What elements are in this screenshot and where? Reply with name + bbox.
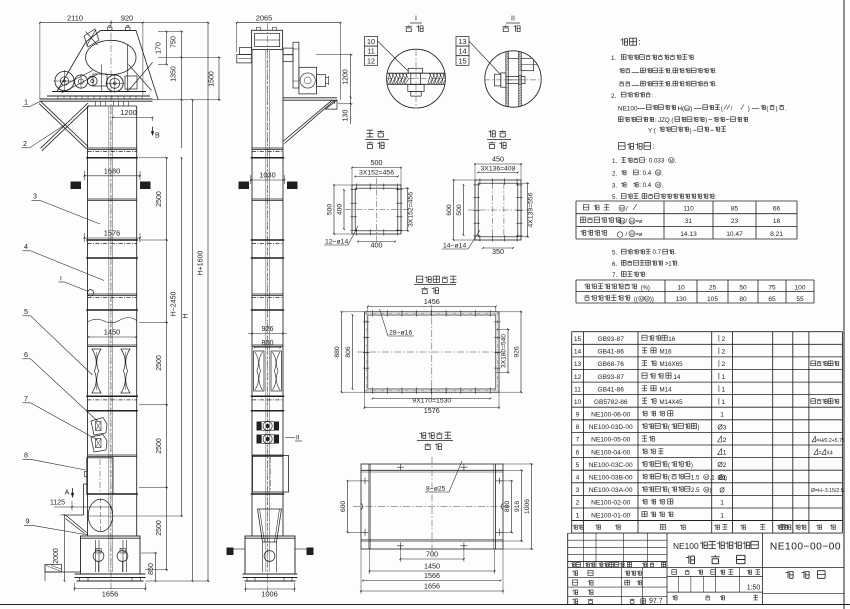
svg-text:,1: ,1	[710, 475, 716, 482]
svg-text:25: 25	[709, 284, 717, 291]
svg-text:3.: 3.	[612, 183, 617, 190]
svg-text:>1: >1	[665, 260, 673, 267]
svg-text:2: 2	[576, 500, 580, 507]
svg-text:100: 100	[794, 284, 805, 291]
svg-text:4X139=556: 4X139=556	[528, 192, 535, 227]
svg-text:Y (: Y (	[648, 127, 657, 134]
svg-text:2.: 2.	[612, 170, 617, 177]
svg-text:500: 500	[371, 158, 383, 167]
svg-text:23: 23	[731, 218, 739, 225]
svg-text:): )	[748, 106, 750, 113]
svg-text:12−ø14: 12−ø14	[325, 239, 348, 246]
svg-text:75: 75	[768, 284, 776, 291]
svg-text:NE100-03D-00: NE100-03D-00	[589, 424, 633, 431]
svg-text:GB41-86: GB41-86	[597, 349, 624, 356]
svg-text:NE100-03C-00: NE100-03C-00	[589, 462, 633, 469]
svg-text:NE100-04-00: NE100-04-00	[591, 449, 631, 456]
svg-text:1576: 1576	[104, 229, 120, 238]
svg-text:10: 10	[677, 284, 685, 291]
svg-text:400: 400	[337, 204, 344, 216]
svg-text:11: 11	[574, 386, 581, 393]
svg-text:4: 4	[576, 475, 580, 482]
svg-text:1: 1	[721, 374, 725, 381]
svg-text:2065: 2065	[256, 14, 272, 23]
svg-text:: 0.4: : 0.4	[639, 170, 652, 177]
svg-text:/: /	[626, 231, 628, 238]
svg-text:1: 1	[721, 399, 725, 406]
svg-text::: :	[639, 38, 641, 47]
svg-text:16: 16	[668, 336, 675, 343]
svg-text:Ø=H−3.15/2.5: Ø=H−3.15/2.5	[811, 488, 844, 494]
svg-text:105: 105	[707, 296, 718, 303]
svg-text:1450: 1450	[104, 328, 120, 337]
svg-text:806: 806	[345, 346, 352, 358]
svg-text:NE100: NE100	[618, 106, 638, 113]
svg-text:.: .	[715, 69, 716, 75]
svg-text:NE100−00−00: NE100−00−00	[770, 542, 841, 553]
svg-text:13: 13	[574, 361, 582, 368]
svg-text:1030: 1030	[259, 171, 275, 180]
svg-text:GB68-76: GB68-76	[597, 361, 624, 368]
svg-text:2.: 2.	[611, 93, 616, 100]
svg-text:170: 170	[156, 42, 163, 54]
svg-text:2500: 2500	[156, 191, 163, 207]
svg-text:,: ,	[671, 69, 672, 75]
svg-text:66: 66	[773, 205, 781, 212]
svg-text:): )	[776, 106, 778, 113]
svg-text:800: 800	[262, 338, 274, 347]
svg-text:1680: 1680	[104, 167, 120, 176]
svg-text:M: M	[640, 296, 643, 301]
svg-text:M14: M14	[660, 386, 673, 393]
svg-text:14: 14	[674, 374, 681, 381]
svg-text:1656: 1656	[102, 590, 118, 599]
svg-text:NE100-05-00: NE100-05-00	[591, 437, 631, 444]
svg-text:10.47: 10.47	[726, 231, 743, 238]
svg-text:H−2450: H−2450	[171, 292, 178, 317]
svg-text:=: =	[818, 450, 821, 456]
svg-text:M: M	[645, 296, 648, 301]
svg-text:926: 926	[262, 324, 274, 333]
svg-text:: JZQ (: : JZQ (	[655, 117, 675, 124]
svg-text:2: 2	[723, 437, 727, 444]
svg-text:55: 55	[796, 296, 804, 303]
svg-text:=ø: =ø	[636, 219, 643, 225]
svg-text:916: 916	[514, 501, 521, 513]
svg-text:50: 50	[739, 284, 747, 291]
svg-text:9X170=1530: 9X170=1530	[412, 397, 451, 404]
svg-text:8.21: 8.21	[770, 231, 783, 238]
svg-text:8: 8	[576, 424, 580, 431]
svg-text:500: 500	[456, 204, 463, 216]
svg-text:2: 2	[723, 462, 727, 469]
svg-text:15: 15	[459, 56, 467, 65]
svg-text:8: 8	[24, 451, 28, 460]
svg-text:5: 5	[576, 462, 580, 469]
svg-text:): )	[710, 487, 712, 494]
svg-text:M: M	[705, 487, 708, 492]
svg-text:12: 12	[574, 374, 582, 381]
svg-text:1.5: 1.5	[691, 475, 700, 482]
svg-text:14−ø14: 14−ø14	[443, 243, 466, 250]
svg-text:2.5: 2.5	[691, 487, 700, 494]
svg-text:12: 12	[367, 56, 375, 65]
svg-text:6: 6	[576, 449, 580, 456]
svg-text:110: 110	[683, 205, 694, 212]
svg-text:2500: 2500	[156, 438, 163, 454]
svg-text:NE100-01-00: NE100-01-00	[591, 512, 631, 519]
svg-text:GB41-86: GB41-86	[597, 386, 624, 393]
svg-text:600: 600	[340, 501, 347, 513]
svg-text:NE100-03A-00: NE100-03A-00	[589, 487, 633, 494]
svg-text:1450: 1450	[424, 562, 440, 571]
svg-text:.: .	[675, 158, 677, 165]
svg-text:750: 750	[171, 36, 178, 48]
svg-text:A: A	[65, 490, 70, 497]
svg-text:130: 130	[343, 110, 350, 122]
svg-text:65: 65	[768, 296, 776, 303]
svg-text:4: 4	[24, 242, 28, 251]
svg-text:): )	[691, 462, 693, 469]
svg-text:5: 5	[24, 307, 28, 316]
svg-text:2110: 2110	[67, 14, 83, 23]
svg-text:I: I	[60, 276, 62, 283]
svg-text:M: M	[705, 475, 708, 480]
svg-text:1: 1	[720, 500, 724, 507]
svg-text:10: 10	[574, 399, 582, 406]
svg-text:1:50: 1:50	[747, 585, 761, 592]
svg-text:85: 85	[731, 205, 739, 212]
svg-text:1: 1	[723, 475, 727, 482]
svg-text:3X152=456: 3X152=456	[408, 192, 415, 227]
svg-text:9: 9	[26, 517, 30, 526]
svg-text:1: 1	[24, 98, 28, 107]
svg-text:): )	[698, 424, 700, 431]
svg-text:II: II	[296, 435, 300, 442]
svg-text::: :	[645, 273, 647, 279]
svg-text:3X152=456: 3X152=456	[359, 169, 394, 176]
svg-text:97.7: 97.7	[649, 598, 663, 605]
svg-text:7: 7	[24, 394, 28, 403]
svg-text:NE100-03B-00: NE100-03B-00	[589, 475, 633, 482]
svg-text:M16: M16	[660, 349, 673, 356]
svg-text:11: 11	[367, 47, 374, 56]
svg-text:7: 7	[576, 437, 580, 444]
svg-text:): )	[690, 106, 692, 113]
svg-text:X4: X4	[826, 450, 833, 456]
svg-text:(%): (%)	[641, 285, 650, 291]
svg-text:31: 31	[685, 218, 693, 225]
svg-text:: 0.033: : 0.033	[645, 158, 664, 165]
svg-text:1566: 1566	[424, 571, 440, 580]
svg-text:2500: 2500	[156, 520, 163, 536]
svg-text:GB93-87: GB93-87	[597, 336, 624, 343]
svg-text:M: M	[670, 158, 674, 163]
svg-text:1576: 1576	[424, 406, 440, 415]
svg-text:1350: 1350	[171, 66, 178, 82]
svg-text:.: .	[785, 106, 787, 113]
svg-text:7.: 7.	[612, 272, 617, 279]
svg-text:1656: 1656	[424, 582, 440, 591]
svg-text:2: 2	[721, 361, 725, 368]
svg-text:M: M	[620, 219, 624, 224]
svg-text:=ø: =ø	[636, 232, 643, 238]
svg-text:.: .	[662, 183, 664, 190]
svg-text:NE100-06-00: NE100-06-00	[591, 412, 631, 419]
svg-text:1006: 1006	[524, 499, 531, 514]
svg-text:1125: 1125	[50, 500, 65, 507]
svg-text:2500: 2500	[156, 355, 163, 371]
svg-text:3: 3	[576, 487, 580, 494]
svg-text:.: .	[678, 261, 680, 267]
svg-text:H+1600: H+1600	[198, 251, 205, 276]
svg-text:2: 2	[721, 349, 725, 356]
svg-text:450: 450	[492, 155, 504, 164]
svg-text:): )	[705, 117, 707, 124]
svg-text:II: II	[511, 16, 515, 23]
svg-text:6: 6	[24, 350, 28, 359]
svg-text:.: .	[715, 82, 716, 88]
svg-text:Ø: Ø	[719, 487, 725, 494]
svg-text:1: 1	[576, 512, 580, 519]
svg-text:880: 880	[334, 346, 341, 358]
svg-text:.: .	[675, 250, 677, 256]
svg-text:): )	[690, 127, 692, 134]
svg-text:1: 1	[721, 386, 725, 393]
svg-text:H(: H(	[678, 106, 685, 113]
svg-text:/: /	[626, 206, 628, 213]
svg-text:130: 130	[675, 296, 686, 303]
svg-text:B: B	[155, 133, 160, 140]
svg-text:NE100: NE100	[673, 541, 699, 551]
svg-text:.: .	[662, 170, 664, 177]
svg-text:926: 926	[514, 346, 521, 358]
svg-text:1: 1	[723, 450, 727, 457]
svg-text:: 0.4: : 0.4	[639, 182, 652, 189]
svg-text:1200: 1200	[343, 69, 350, 85]
svg-text::: :	[653, 142, 655, 151]
svg-text:14.13: 14.13	[680, 231, 697, 238]
svg-text:3X136=408: 3X136=408	[481, 166, 516, 173]
svg-text:8−ø25: 8−ø25	[426, 486, 446, 493]
svg-text:1: 1	[720, 512, 724, 519]
svg-text:850: 850	[148, 563, 155, 575]
svg-text:3: 3	[723, 424, 727, 431]
svg-text:GB93-87: GB93-87	[597, 374, 624, 381]
svg-text:M: M	[620, 206, 624, 211]
svg-text:1: 1	[720, 412, 724, 419]
svg-text::: :	[652, 93, 654, 99]
svg-text:3: 3	[33, 192, 37, 201]
svg-text:3X180=540: 3X180=540	[501, 334, 508, 368]
svg-text:=H/0.2+5.75: =H/0.2+5.75	[816, 438, 845, 444]
svg-text:10: 10	[367, 37, 375, 46]
svg-text:1200: 1200	[120, 108, 136, 117]
svg-text:1500: 1500	[209, 71, 216, 87]
svg-text:2000: 2000	[53, 548, 60, 564]
svg-text:M14X45: M14X45	[660, 399, 684, 406]
svg-text:2: 2	[23, 139, 27, 148]
svg-text:28−ø16: 28−ø16	[389, 330, 412, 337]
svg-text:M: M	[656, 183, 660, 188]
svg-text:GB5782-86: GB5782-86	[594, 399, 628, 406]
svg-text:500: 500	[327, 204, 334, 216]
svg-text:2: 2	[721, 336, 725, 343]
svg-text:I: I	[415, 16, 417, 23]
svg-text:13: 13	[459, 37, 467, 46]
svg-text:)): ))	[650, 297, 654, 303]
svg-text:1006: 1006	[261, 590, 277, 599]
svg-text:5.: 5.	[612, 250, 617, 257]
svg-text:/: /	[626, 218, 628, 225]
svg-text:0.7: 0.7	[653, 249, 662, 256]
svg-text:18: 18	[773, 218, 781, 225]
svg-text:920: 920	[121, 14, 133, 23]
svg-text:400: 400	[371, 241, 383, 250]
svg-text:,: ,	[671, 82, 672, 88]
svg-text:800: 800	[504, 501, 511, 513]
svg-text:1.: 1.	[612, 158, 617, 165]
svg-text:NE100-02-00: NE100-02-00	[591, 500, 631, 507]
svg-text:((: ((	[634, 297, 638, 303]
svg-text:14: 14	[574, 349, 582, 356]
svg-text:M: M	[630, 219, 634, 224]
svg-text:M: M	[656, 170, 660, 175]
svg-text:5.: 5.	[612, 194, 617, 201]
svg-text:15: 15	[574, 336, 582, 343]
svg-text:14: 14	[459, 47, 467, 56]
svg-text:6.: 6.	[612, 261, 617, 268]
svg-text:1.: 1.	[611, 55, 616, 62]
svg-text:H: H	[183, 313, 190, 318]
svg-text:M16X65: M16X65	[660, 361, 684, 368]
svg-text:80: 80	[739, 296, 747, 303]
svg-text:M: M	[630, 232, 634, 237]
svg-text:700: 700	[426, 550, 438, 559]
svg-text:9: 9	[576, 412, 580, 419]
svg-text:350: 350	[492, 247, 504, 256]
svg-text:1456: 1456	[424, 297, 440, 306]
svg-text::: :	[715, 195, 717, 201]
svg-text:600: 600	[446, 204, 453, 216]
